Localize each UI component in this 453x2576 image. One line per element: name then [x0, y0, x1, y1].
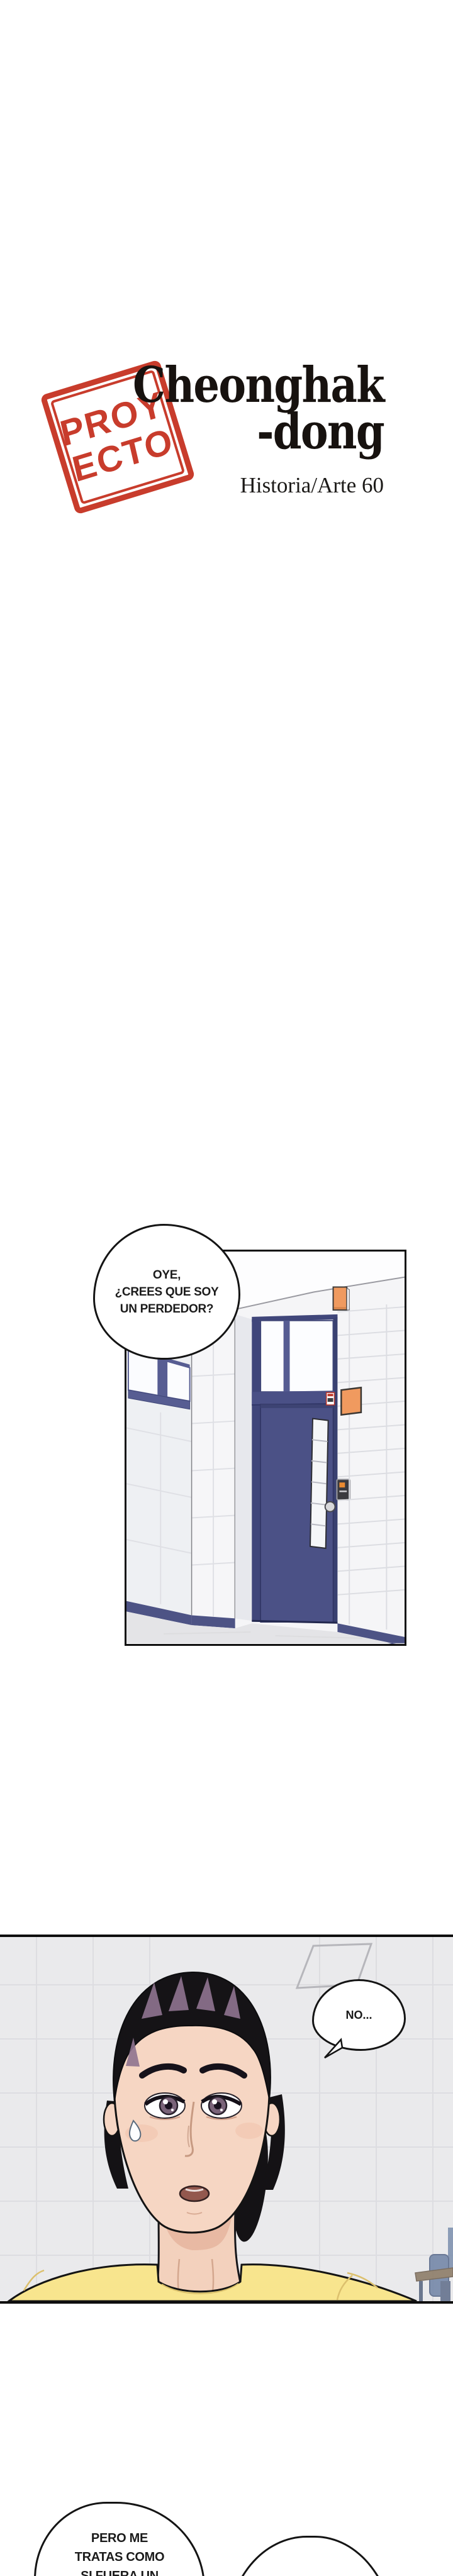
orange-wall-sign: [341, 1387, 361, 1414]
webtoon-page: PROY ECTO Cheonghak -dong Historia/Arte …: [0, 0, 453, 2576]
blue-door: [260, 1392, 335, 1622]
speech-bubble-next: [226, 2536, 395, 2576]
episode-credit: Historia/Arte 60: [240, 473, 384, 498]
mouth: [180, 2186, 209, 2201]
left-wall: [126, 1330, 192, 1626]
bubble-no-text: NO...: [345, 2008, 372, 2022]
door-frame-left: [252, 1319, 260, 1621]
door-frame-right: [333, 1317, 338, 1623]
series-title-line2: -dong: [133, 406, 384, 458]
series-title: Cheonghak -dong: [85, 360, 384, 458]
tiled-pillar: [192, 1314, 235, 1628]
bubble-oye-line2: ¿CREES QUE SOY: [115, 1284, 219, 1301]
bubble-oye-line1: OYE,: [153, 1267, 181, 1284]
bubble-oye-line3: UN PERDEDOR?: [120, 1301, 213, 1318]
door-knob: [325, 1502, 335, 1512]
door-sticker-sign: [327, 1392, 335, 1405]
speech-bubble-no-tail: [320, 2038, 345, 2060]
speech-bubble-pero: PERO ME TRATAS COMO SI FUERA UN: [34, 2502, 205, 2576]
bubble-pero-line1: PERO ME: [91, 2529, 148, 2548]
speech-bubble-oye: OYE, ¿CREES QUE SOY UN PERDEDOR?: [93, 1224, 240, 1360]
door-louver-window: [310, 1419, 328, 1548]
door-transom-window: [252, 1321, 334, 1406]
door-keypad-lock: [337, 1479, 350, 1500]
bubble-pero-line2: TRATAS COMO: [75, 2548, 165, 2567]
exit-light-box: [333, 1287, 350, 1310]
bubble-pero-line3: SI FUERA UN: [81, 2567, 159, 2576]
door-recess-wall: [235, 1314, 252, 1621]
